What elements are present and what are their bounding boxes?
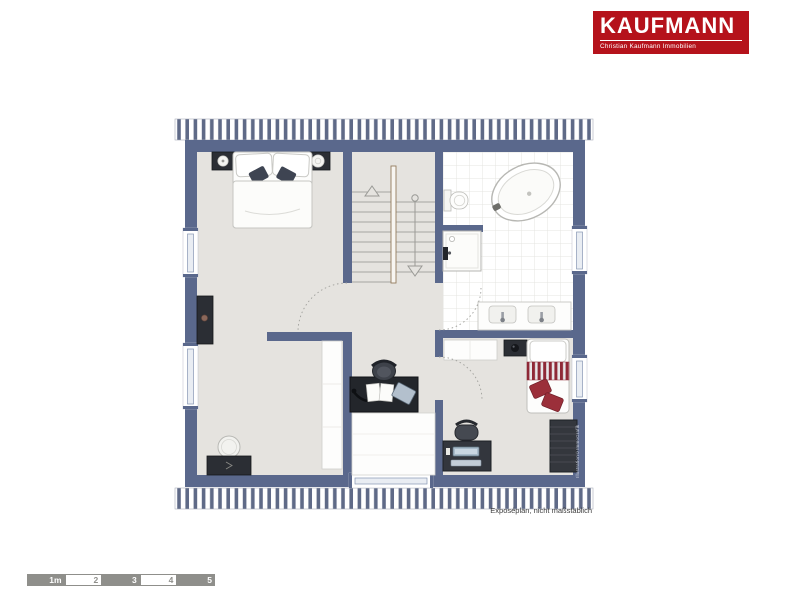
- logo-tagline: Christian Kaufmann Immobilien: [600, 43, 742, 50]
- scale-segment-4: 4: [140, 574, 178, 586]
- nightstand-left: [212, 152, 234, 170]
- scale-segment-2: 2: [65, 574, 103, 586]
- dormer-bay: [352, 413, 435, 475]
- kaufmann-logo: KAUFMANN Christian Kaufmann Immobilien: [593, 11, 749, 54]
- scale-label-4: 4: [169, 575, 174, 585]
- scale-label-1m: 1m: [49, 575, 61, 585]
- window-left-upper: [183, 228, 198, 277]
- window-right-bathroom: [572, 226, 587, 274]
- wardrobe-dark: [550, 420, 577, 472]
- double-bed: [233, 152, 312, 228]
- floorplan-page: KAUFMANN Christian Kaufmann Immobilien E…: [0, 0, 787, 600]
- scale-segment-5: 5: [177, 574, 215, 586]
- single-bed: [527, 339, 569, 413]
- tall-wardrobe-white: [322, 341, 342, 469]
- scale-label-3: 3: [132, 575, 137, 585]
- window-left-lower: [183, 343, 198, 409]
- plan-caption: Exposéplan, nicht maßstäblich: [392, 506, 592, 515]
- roof-hatch-top: [175, 119, 593, 140]
- illustrator-credit: Illustration©ImmoGrafik: [575, 416, 584, 478]
- scale-segment-1: 1m: [27, 574, 65, 586]
- shower: [443, 231, 481, 271]
- scale-label-2: 2: [93, 575, 98, 585]
- scale-label-5: 5: [207, 575, 212, 585]
- logo-brand-text: KAUFMANN: [600, 15, 742, 41]
- desk-with-computer: [443, 441, 491, 471]
- window-right-bedroom: [572, 355, 587, 402]
- wardrobe-white-bedroom2: [444, 340, 497, 360]
- toilet: [444, 190, 468, 211]
- work-desk: [350, 377, 418, 412]
- washbasin-counter: [478, 302, 571, 330]
- sideboard: [197, 296, 213, 344]
- stair-divider: [391, 166, 396, 283]
- office-chair-hall: [372, 361, 396, 381]
- scale-segment-3: 3: [102, 574, 140, 586]
- scale-bar: 1m 2 3 4 5: [27, 574, 215, 586]
- nightstand-bedroom2: [504, 340, 527, 356]
